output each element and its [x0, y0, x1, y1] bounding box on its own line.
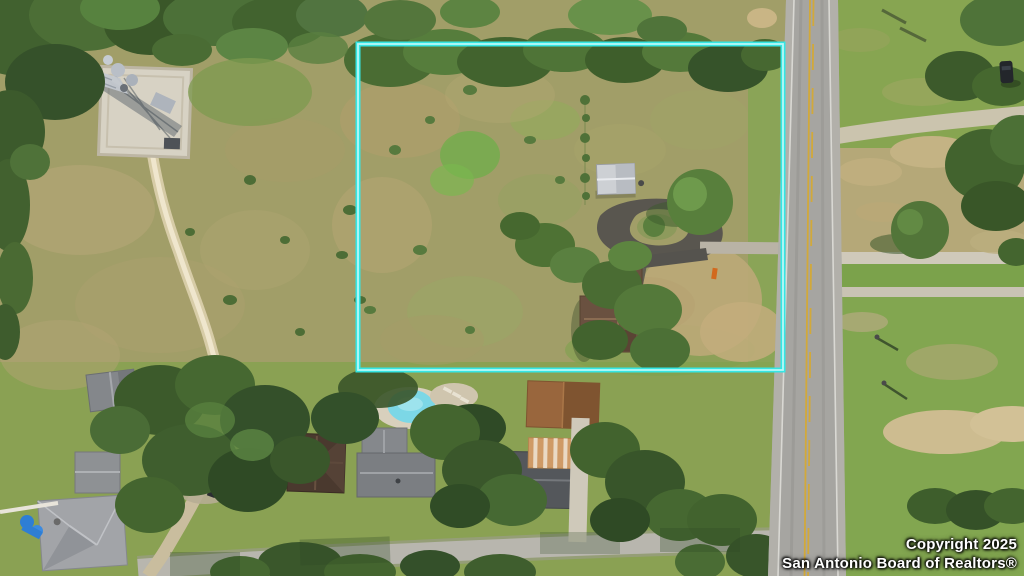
copyright-line-1: Copyright 2025 [782, 535, 1017, 554]
neighbor-house-b [75, 452, 120, 493]
neighbor-house-c [38, 495, 128, 571]
aerial-photo: Copyright 2025 San Antonio Board of Real… [0, 0, 1024, 576]
east-driveway-strip-2 [830, 287, 1024, 297]
equipment-cabinet [164, 138, 180, 150]
driveway-to-road [700, 242, 790, 255]
copyright-line-2: San Antonio Board of Realtors® [782, 554, 1017, 573]
aerial-photo-art [0, 0, 1024, 576]
copyright-watermark: Copyright 2025 San Antonio Board of Real… [782, 535, 1017, 573]
antenna-cluster [120, 84, 128, 92]
